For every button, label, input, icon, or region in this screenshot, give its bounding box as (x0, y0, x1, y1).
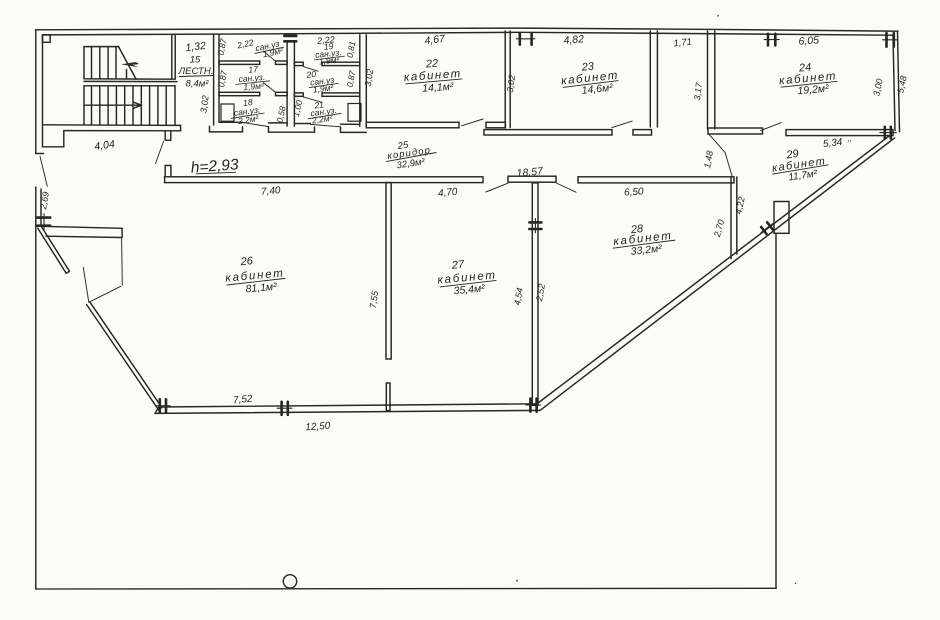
svg-text:4,22: 4,22 (733, 196, 746, 215)
svg-text:3,17: 3,17 (692, 81, 704, 101)
svg-text:7,52: 7,52 (232, 393, 253, 406)
svg-text:8,4м²: 8,4м² (186, 79, 210, 90)
svg-text:19,2м²: 19,2м² (797, 83, 830, 98)
svg-text:15: 15 (190, 55, 201, 66)
svg-text:12,50: 12,50 (305, 421, 331, 434)
svg-text:2,2м²: 2,2м² (310, 113, 334, 126)
svg-text:3,02: 3,02 (363, 68, 375, 87)
svg-text:5,34: 5,34 (822, 137, 843, 150)
svg-text:1,71: 1,71 (673, 37, 693, 50)
svg-text:4,82: 4,82 (563, 33, 585, 47)
svg-text:0,87: 0,87 (345, 70, 358, 88)
svg-text:0,87: 0,87 (216, 38, 229, 56)
svg-text:35,4м²: 35,4м² (453, 282, 486, 297)
svg-text:6,05: 6,05 (798, 34, 819, 47)
svg-text:2,70: 2,70 (712, 218, 726, 238)
svg-text:5,48: 5,48 (895, 75, 908, 94)
svg-text:81,1м²: 81,1м² (245, 281, 278, 296)
svg-text:0,81: 0,81 (345, 40, 358, 58)
svg-text:3,02: 3,02 (505, 74, 517, 93)
svg-text:3,02: 3,02 (198, 95, 210, 114)
svg-text:33,2м²: 33,2м² (630, 243, 663, 258)
svg-text:4,70: 4,70 (437, 186, 458, 199)
svg-text:7,55: 7,55 (368, 289, 380, 309)
svg-text:22: 22 (425, 58, 439, 71)
svg-text:1,48: 1,48 (702, 150, 715, 169)
svg-text:1,32: 1,32 (185, 40, 207, 54)
svg-text:2,2м²: 2,2м² (236, 113, 260, 126)
svg-text:14,1м²: 14,1м² (422, 81, 454, 95)
svg-text:7,40: 7,40 (261, 185, 282, 198)
svg-text:1,9м²: 1,9м² (318, 54, 341, 66)
svg-text:4,54: 4,54 (512, 287, 525, 306)
svg-text:6,50: 6,50 (624, 186, 645, 198)
svg-text:4,04: 4,04 (94, 138, 116, 153)
svg-text:0,58: 0,58 (274, 105, 287, 124)
svg-text:2,69: 2,69 (38, 191, 51, 211)
svg-text:1,00: 1,00 (291, 99, 304, 118)
svg-text:1,9м²: 1,9м² (243, 80, 265, 92)
svg-text:3,00: 3,00 (871, 78, 884, 97)
svg-text:27: 27 (450, 259, 465, 272)
svg-text:2,52: 2,52 (534, 283, 547, 303)
svg-text:0,87: 0,87 (216, 70, 229, 88)
svg-text:26: 26 (239, 255, 254, 268)
svg-text:18,57: 18,57 (516, 165, 544, 179)
svg-text:2,22: 2,22 (235, 37, 255, 50)
svg-text:14,6м²: 14,6м² (581, 82, 614, 97)
svg-text:4,67: 4,67 (424, 33, 447, 47)
